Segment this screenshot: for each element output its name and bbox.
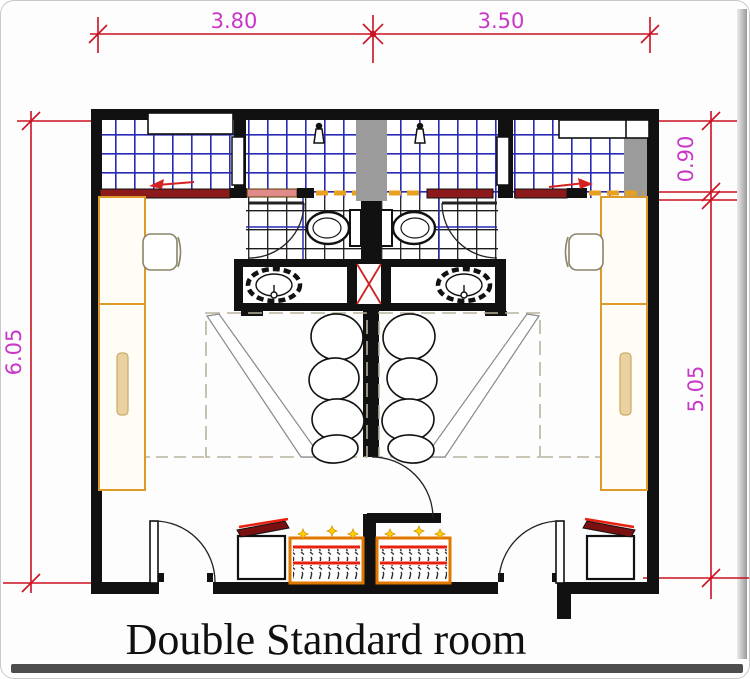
floor-plan-image: 3.80 3.50 6.05 0.90 5.05 [0, 0, 750, 679]
vanity-core [234, 259, 506, 311]
minibar-cabinet-left [290, 526, 363, 583]
toilet-icon [381, 210, 435, 246]
door-jamb [158, 573, 164, 582]
chair-icon [143, 234, 181, 270]
left-shower-tiles [246, 120, 357, 198]
cabinet-contents [380, 549, 447, 561]
toilet-icon [307, 210, 361, 246]
duct-shaft-x-box [356, 263, 382, 305]
desk-left [99, 197, 145, 490]
wall-bottom-left [91, 582, 159, 594]
top-shelf-left [148, 113, 233, 134]
cabinet-contents [293, 565, 360, 579]
right-service-shaft [624, 138, 647, 198]
wall-right [647, 109, 659, 594]
dim-label-6-05: 6.05 [2, 329, 26, 376]
wash-basin-icon [248, 269, 300, 301]
bed-runner [207, 314, 321, 457]
dim-label-0-90: 0.90 [674, 136, 698, 183]
chair-icon [566, 234, 604, 270]
door-track-block [230, 188, 247, 198]
dim-label-5-05: 5.05 [684, 366, 708, 413]
connecting-door [367, 457, 441, 523]
center-service-shaft [356, 120, 387, 201]
wall-center-lower [363, 514, 376, 594]
desk-handle [620, 353, 631, 415]
dimension-top [89, 15, 659, 63]
top-shelf-right [559, 120, 649, 138]
dim-label-3-80: 3.80 [211, 9, 258, 33]
pillows [380, 311, 439, 465]
wardrobe-sliding-door [427, 189, 493, 198]
door-jamb [207, 573, 213, 582]
wall-center-bedroom [363, 311, 379, 457]
desk-handle [117, 353, 128, 415]
cabinet-contents [380, 565, 447, 579]
pillows [307, 311, 366, 465]
desk-right [601, 197, 647, 490]
door-track-block [297, 188, 314, 198]
wash-basin-icon [438, 269, 490, 301]
wardrobe-sliding-door-pink [247, 189, 297, 197]
right-shower-tiles [387, 120, 498, 198]
image-bottom-bar [11, 664, 743, 673]
cabinet-contents [293, 549, 360, 561]
minibar-cabinet-right [377, 526, 450, 583]
shower-door-panel-right [497, 137, 509, 185]
image-right-shadow [737, 9, 747, 659]
bed-runner [425, 314, 539, 457]
tv-stand-right [583, 519, 635, 579]
wardrobe-sliding-door [515, 189, 567, 198]
floor-plan-canvas: 3.80 3.50 6.05 0.90 5.05 [1, 1, 750, 679]
wall-center-bathroom [361, 198, 381, 260]
door-track-block [567, 188, 587, 198]
wall-bottom-right [557, 582, 659, 594]
tv-stand-left [237, 519, 289, 579]
plan-title: Double Standard room [1, 614, 651, 665]
dim-label-3-50: 3.50 [478, 9, 525, 33]
shower-door-panel-left [232, 137, 244, 185]
